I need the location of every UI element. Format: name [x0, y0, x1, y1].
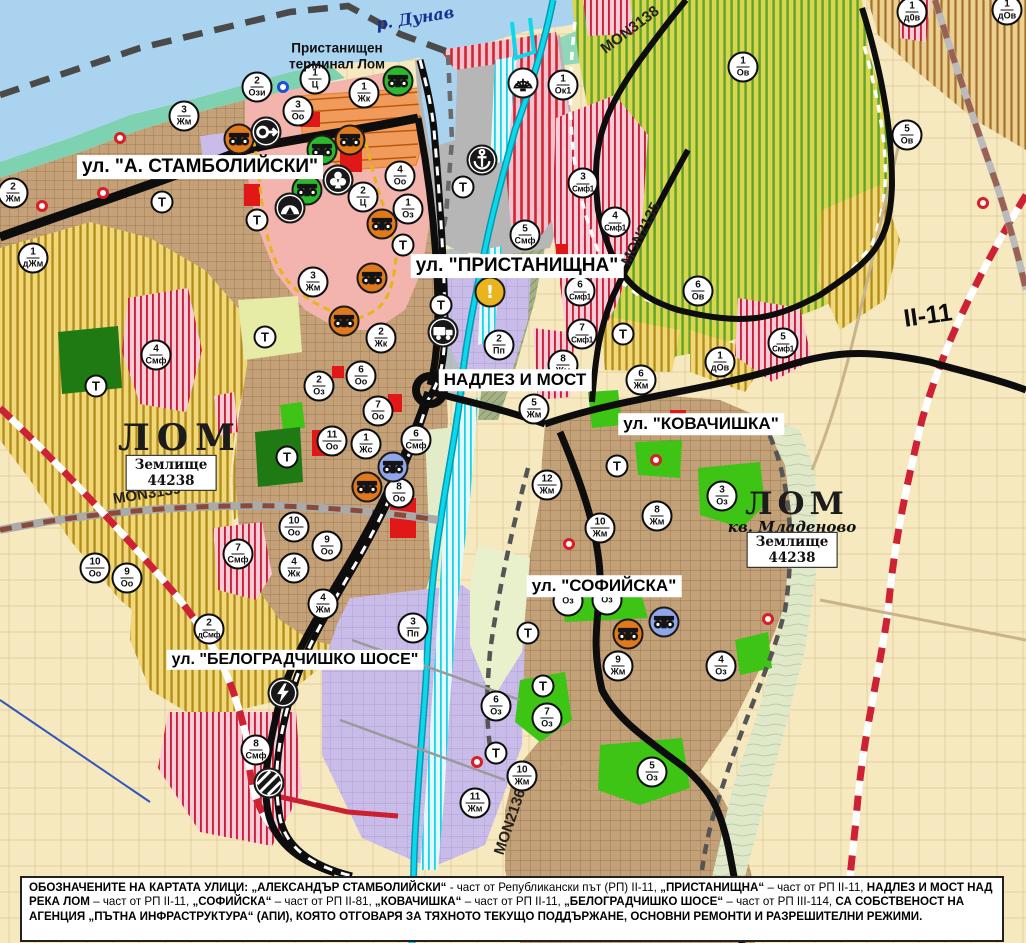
zone-code: Оо: [292, 112, 305, 122]
map-annotations: 2 Ози 1 Ц 3 Оо 1 Жк 1 Ок1 3 Жм 2 Жм 1 дЖ…: [0, 0, 1026, 943]
zone-code: Оо: [372, 412, 385, 422]
zone-marker: 2 дСмф: [194, 614, 225, 645]
zone-number: 2: [6, 182, 20, 194]
zone-number: 7: [371, 400, 385, 412]
zone-code: Ози: [248, 88, 265, 98]
zone-number: 8: [650, 505, 664, 517]
zone-code: Оз: [402, 210, 413, 220]
zone-number: 6: [691, 280, 705, 292]
zone-marker: 7 Оз: [532, 703, 563, 734]
zone-code: Жм: [611, 667, 626, 677]
zone-code: Ов: [692, 292, 705, 302]
zone-number: 10: [512, 765, 531, 777]
zone-marker: 3 Жм: [298, 267, 329, 298]
zone-number: 4: [316, 593, 330, 605]
zone-code: Смф: [406, 441, 427, 451]
zone-number: 2: [492, 334, 506, 346]
svg-text:!: !: [486, 282, 494, 303]
zone-number: 8: [249, 739, 263, 751]
zone-marker: 6 Оо: [346, 361, 377, 392]
zone-number: 7: [231, 543, 245, 555]
zone-code: Ов: [901, 136, 914, 146]
zone-code: Пп: [493, 346, 505, 356]
zoning-map: 2 Ози 1 Ц 3 Оо 1 Жк 1 Ок1 3 Жм 2 Жм 1 дЖ…: [0, 0, 1026, 943]
truck-icon: [428, 317, 459, 348]
zone-marker: 2 Жк: [366, 323, 397, 354]
monument-icon: [335, 125, 366, 156]
zone-number: 12: [537, 474, 556, 486]
zone-marker: 4 Смф1: [600, 207, 631, 238]
transformer-marker: Т: [452, 176, 475, 199]
point-marker: [762, 613, 774, 625]
map-label: Пристанищен терминал Лом: [289, 40, 385, 71]
zone-marker: 3 Оо: [283, 96, 314, 127]
street-label: ул. "ПРИСТАНИЩНА": [411, 254, 624, 278]
zone-code: Оз: [541, 719, 552, 729]
zone-marker: 12 Жм: [532, 470, 563, 501]
zone-code: дОв: [711, 363, 729, 373]
zone-number: 2: [374, 327, 388, 339]
cave-icon: [275, 193, 306, 224]
zone-marker: 6 Смф1: [565, 276, 596, 307]
transformer-marker: Т: [276, 446, 299, 469]
zone-marker: 4 Жм: [308, 589, 339, 620]
zone-number: 5: [900, 124, 914, 136]
zone-marker: 2 Оз: [304, 371, 335, 402]
zone-code: Жм: [316, 605, 331, 615]
zone-marker: 10 Жм: [585, 513, 616, 544]
zone-marker: 4 Оз: [706, 651, 737, 682]
zone-number: 1: [359, 433, 373, 445]
zone-marker: 3 Пп: [398, 613, 429, 644]
zone-marker: 10 Оо: [80, 553, 111, 584]
zone-marker: 1 Жк: [349, 78, 380, 109]
zone-number: 1: [357, 82, 371, 94]
zone-code: Жм: [468, 804, 483, 814]
sight-arrow-icon: [251, 117, 282, 148]
monument-icon: [352, 472, 383, 503]
zone-code: Жм: [306, 283, 321, 293]
zone-marker: 8 Оо: [384, 478, 415, 509]
land-area-title: Землище: [756, 534, 829, 550]
zone-number: 9: [611, 655, 625, 667]
zone-code: дОв: [998, 11, 1016, 21]
road-number-label: MON3138: [598, 3, 663, 58]
zone-code: Оо: [393, 494, 406, 504]
street-label: НАДЛЕЗ И МОСТ: [439, 369, 592, 391]
zone-code: Оо: [89, 569, 102, 579]
zone-code: Смф: [146, 356, 167, 366]
club-icon: [323, 165, 354, 196]
zone-marker: 9 Жм: [603, 651, 634, 682]
zone-number: 11: [466, 792, 485, 804]
zone-code: дЖм: [23, 259, 44, 269]
zone-number: 1: [905, 1, 919, 13]
zone-marker: 5 Смф1: [768, 328, 799, 359]
point-marker: [563, 538, 575, 550]
zone-number: 6: [489, 695, 503, 707]
zone-number: 10: [590, 517, 609, 529]
zone-number: 7: [575, 324, 589, 336]
zone-marker: 1 д0в: [897, 0, 928, 28]
monument-icon: [367, 209, 398, 240]
zone-marker: 9 Оо: [112, 563, 143, 594]
zone-marker: 5 Ов: [892, 120, 923, 151]
zone-number: 1: [26, 247, 40, 259]
zone-marker: 3 Жм: [169, 101, 200, 132]
transformer-marker: Т: [254, 326, 277, 349]
map-label: р. Дунав: [375, 2, 456, 33]
zone-marker: 1 дОв: [705, 347, 736, 378]
zone-marker: 4 Оо: [385, 161, 416, 192]
zone-code: Смф: [515, 236, 536, 246]
zone-code: Ц: [312, 80, 319, 90]
anchor-icon: [467, 145, 498, 176]
monument-icon: [357, 263, 388, 294]
zone-code: Ов: [737, 68, 750, 78]
zone-marker: 5 Жм: [519, 394, 550, 425]
lightning-icon: [268, 678, 299, 709]
zone-code: Жм: [634, 381, 649, 391]
transformer-marker: Т: [85, 375, 108, 398]
land-area-code: 44238: [135, 473, 208, 489]
zone-number: 2: [312, 375, 326, 387]
zone-number: 1: [736, 56, 750, 68]
zone-marker: 3 Оз: [707, 481, 738, 512]
warning-icon: !: [475, 277, 506, 308]
zone-code: Жк: [288, 569, 301, 579]
zone-code: Жс: [359, 445, 372, 455]
zone-marker: 8 Жм: [642, 501, 673, 532]
zone-code: Оо: [321, 547, 334, 557]
road-number-label: II-11: [902, 298, 954, 333]
legend-note: ОБОЗНАЧЕНИТЕ НА КАРТАТА УЛИЦИ: „АЛЕКСАНД…: [20, 876, 1004, 942]
land-area-box: Землище 44238: [747, 532, 838, 568]
street-label: ул. "БЕЛОГРАДЧИШКО ШОСЕ": [167, 650, 424, 670]
zone-number: 4: [393, 165, 407, 177]
zone-code: Смф: [246, 751, 267, 761]
zone-marker: 5 Оз: [637, 757, 668, 788]
zone-marker: 11 Жм: [460, 788, 491, 819]
zone-number: 3: [291, 100, 305, 112]
zone-marker: 1 Жс: [351, 429, 382, 460]
street-label: ул. "А. СТАМБОЛИЙСКИ": [77, 155, 323, 179]
point-marker: [277, 81, 289, 93]
zone-number: 5: [527, 398, 541, 410]
zone-code: Жм: [593, 529, 608, 539]
point-marker: [114, 132, 126, 144]
zone-marker: 7 Смф1: [567, 319, 598, 350]
zone-marker: 2 Пп: [484, 330, 515, 361]
zone-marker: 1 дОв: [992, 0, 1023, 26]
transformer-marker: Т: [151, 191, 174, 214]
monument-icon: [649, 607, 680, 638]
zone-marker: 4 Смф: [141, 340, 172, 371]
zone-marker: 6 Ов: [683, 276, 714, 307]
transformer-marker: Т: [485, 742, 508, 765]
zone-number: 1: [556, 74, 570, 86]
transformer-marker: Т: [246, 209, 269, 232]
point-marker: [471, 756, 483, 768]
zone-code: Оз: [562, 596, 573, 606]
zone-code: Оз: [646, 773, 657, 783]
zone-number: 3: [715, 485, 729, 497]
point-marker: [977, 197, 989, 209]
zone-number: 2: [202, 619, 216, 631]
land-area-code: 44238: [756, 550, 829, 566]
zone-number: 5: [645, 761, 659, 773]
zone-number: 3: [306, 271, 320, 283]
zone-code: Жм: [6, 194, 21, 204]
road-number-label: MON2136: [491, 787, 529, 857]
zone-number: 4: [608, 212, 622, 224]
zone-marker: 8 Смф: [241, 735, 272, 766]
zone-number: 8: [556, 354, 570, 366]
zone-number: 3: [177, 105, 191, 117]
zone-number: 6: [409, 429, 423, 441]
zone-code: Оз: [716, 497, 727, 507]
zone-marker: 1 дЖм: [18, 243, 49, 274]
transformer-marker: Т: [532, 675, 555, 698]
point-marker: [97, 187, 109, 199]
zone-number: 10: [85, 557, 104, 569]
zone-code: Смф: [228, 555, 249, 565]
zone-code: Ц: [360, 198, 367, 208]
point-marker: [36, 200, 48, 212]
zone-number: 4: [149, 344, 163, 356]
zone-number: 5: [776, 333, 790, 345]
zone-number: 5: [518, 224, 532, 236]
map-label: ЛОМ: [118, 417, 242, 459]
monument-icon: [613, 619, 644, 650]
zone-code: д0в: [904, 13, 920, 23]
monument-icon: [378, 452, 409, 483]
zone-marker: 6 Смф: [401, 425, 432, 456]
zone-marker: 11 Оо: [317, 426, 348, 457]
land-area-box: Землище 44238: [126, 455, 217, 491]
zone-code: Оо: [394, 177, 407, 187]
zone-marker: 2 Жм: [0, 178, 29, 209]
zone-number: 1: [713, 351, 727, 363]
zone-code: Жм: [650, 517, 665, 527]
zone-code: Жм: [540, 486, 555, 496]
legend-note-text: ОБОЗНАЧЕНИТЕ НА КАРТАТА УЛИЦИ: „АЛЕКСАНД…: [29, 881, 993, 923]
zone-marker: 6 Оз: [481, 691, 512, 722]
zone-number: 6: [573, 281, 587, 293]
zone-code: Смф1: [604, 223, 626, 232]
zone-number: 6: [634, 369, 648, 381]
zone-code: Жм: [515, 777, 530, 787]
zone-number: 1: [1000, 0, 1014, 11]
street-label: ул. "СОФИЙСКА": [527, 575, 682, 597]
zone-number: 4: [287, 557, 301, 569]
zone-code: Смф1: [569, 292, 591, 301]
zone-number: 3: [576, 173, 590, 185]
zone-code: Оз: [313, 387, 324, 397]
zone-code: Оз: [715, 667, 726, 677]
zone-code: Оз: [490, 707, 501, 717]
zone-code: Смф1: [571, 335, 593, 344]
zone-marker: 10 Оо: [279, 512, 310, 543]
zone-code: Жм: [527, 410, 542, 420]
zone-number: 3: [406, 617, 420, 629]
zone-marker: 4 Жк: [279, 553, 310, 584]
zone-code: Ок1: [555, 86, 572, 96]
zone-code: Оо: [326, 442, 339, 452]
zone-marker: 7 Оо: [363, 396, 394, 427]
land-area-title: Землище: [135, 457, 208, 473]
zone-number: 9: [320, 535, 334, 547]
zone-number: 11: [323, 430, 342, 442]
rail-crossing-icon: [254, 768, 285, 799]
zone-marker: 7 Смф: [223, 539, 254, 570]
zone-code: Смф1: [772, 344, 794, 353]
zone-number: 2: [356, 186, 370, 198]
zone-code: Оо: [121, 579, 134, 589]
zone-code: Оо: [288, 528, 301, 538]
monument-icon: [383, 66, 414, 97]
zone-code: Жк: [358, 94, 371, 104]
zone-number: 8: [392, 482, 406, 494]
zone-number: 1: [401, 198, 415, 210]
zone-marker: 3 Смф1: [568, 168, 599, 199]
zone-marker: 1 Ов: [728, 52, 759, 83]
zone-marker: 1 Ок1: [548, 70, 579, 101]
zone-marker: 9 Оо: [312, 531, 343, 562]
zone-marker: 10 Жм: [507, 761, 538, 792]
zone-code: Жк: [375, 339, 388, 349]
zone-code: Пп: [407, 629, 419, 639]
zone-number: 7: [540, 707, 554, 719]
transformer-marker: Т: [517, 622, 540, 645]
street-label: ул. "КОВАЧИШКА": [618, 413, 784, 435]
zone-code: дСмф: [198, 630, 220, 639]
transformer-marker: Т: [606, 455, 629, 478]
monument-icon: [329, 306, 360, 337]
zone-code: Смф1: [572, 184, 594, 193]
zone-code: Оо: [355, 377, 368, 387]
fan-icon: [508, 68, 539, 99]
zone-marker: 6 Жм: [626, 365, 657, 396]
zone-number: 9: [120, 567, 134, 579]
zone-code: Жм: [177, 117, 192, 127]
transformer-marker: Т: [612, 323, 635, 346]
zone-number: 6: [354, 365, 368, 377]
zone-number: 2: [250, 76, 264, 88]
zone-marker: 2 Ози: [242, 72, 273, 103]
map-label: ЛОМ: [745, 486, 849, 522]
transformer-marker: Т: [430, 294, 453, 317]
zone-number: 4: [714, 655, 728, 667]
zone-marker: 5 Смф: [510, 220, 541, 251]
point-marker: [650, 454, 662, 466]
zone-number: 10: [284, 516, 303, 528]
